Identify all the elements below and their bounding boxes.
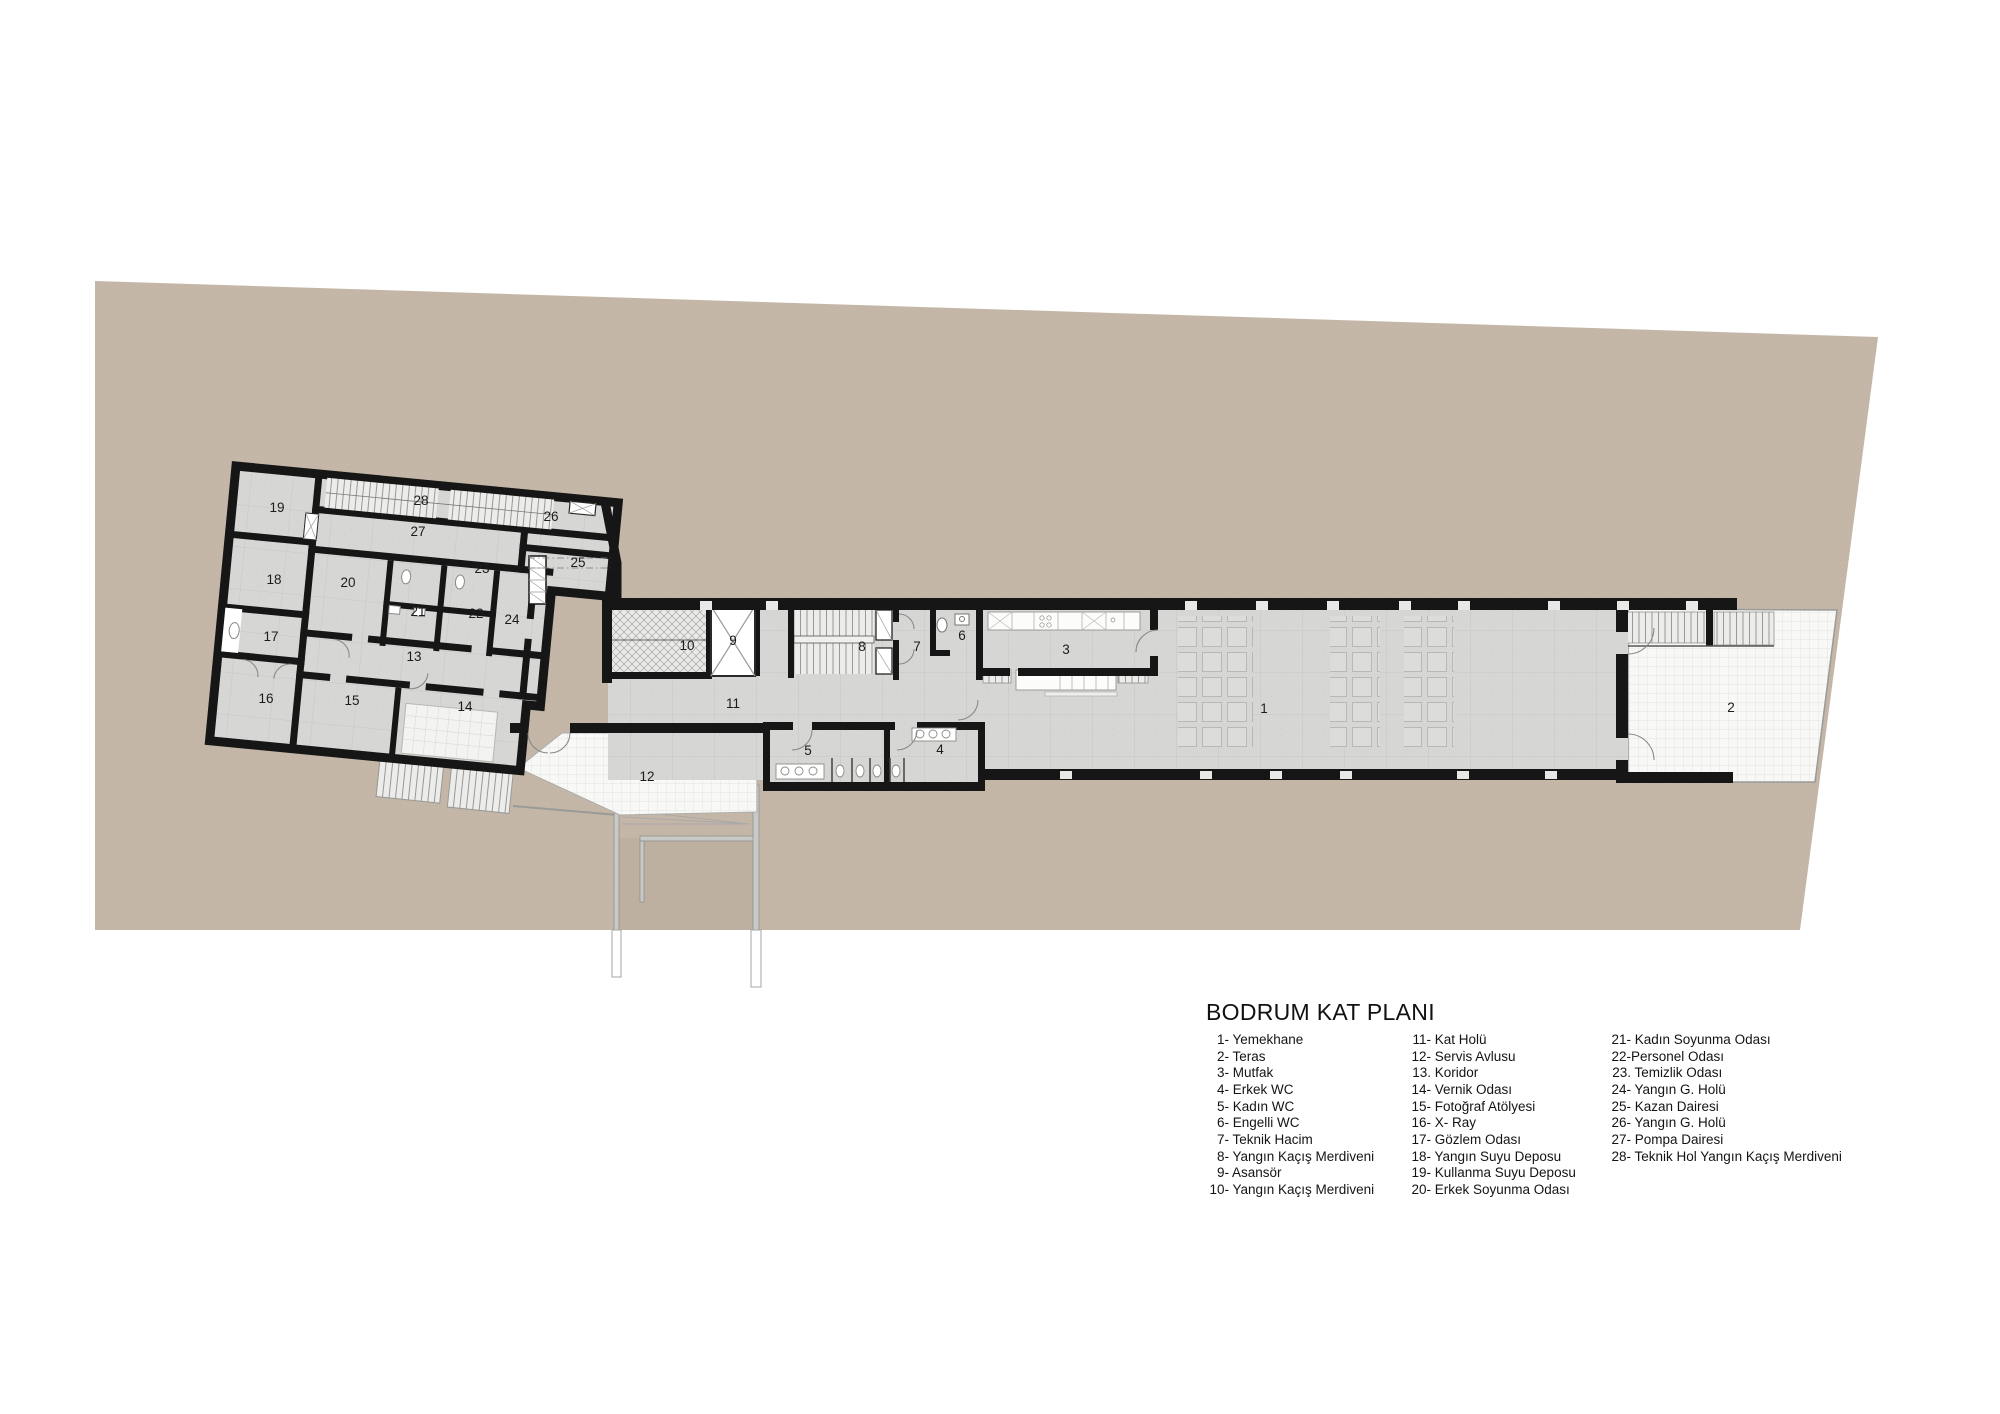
legend-item: 27- Pompa Dairesi [1608,1132,1842,1149]
legend-item: 9- Asansör [1206,1165,1374,1182]
legend-item: 12- Servis Avlusu [1408,1049,1576,1066]
room-label-16: 16 [258,691,273,706]
toilets-block [763,722,985,791]
room-label-4: 4 [936,742,944,757]
legend-column-1: 1- Yemekhane 2- Teras 3- Mutfak 4- Erkek… [1206,1032,1374,1199]
room-label-22: 22 [468,606,483,621]
dining-tables [1404,616,1454,748]
legend-item: 13. Koridor [1408,1065,1576,1082]
room-label-5: 5 [804,743,812,758]
legend-item: 28- Teknik Hol Yangın Kaçış Merdiveni [1608,1149,1842,1166]
legend-item: 24- Yangın G. Holü [1608,1082,1842,1099]
page: 1 2 3 4 5 6 7 8 9 10 11 12 13 14 15 16 1… [0,0,2000,1414]
room-label-28: 28 [413,493,428,508]
room-label-1: 1 [1260,701,1268,716]
room-label-12: 12 [639,769,654,784]
legend-item: 19- Kullanma Suyu Deposu [1408,1165,1576,1182]
legend-item: 18- Yangın Suyu Deposu [1408,1149,1576,1166]
legend-item: 11- Kat Holü [1408,1032,1576,1049]
terrace-stair [1623,612,1708,643]
room-label-17: 17 [263,629,278,644]
room-label-15: 15 [344,693,359,708]
room-label-26: 26 [543,509,558,524]
stair-10 [612,608,712,679]
legend-item: 16- X- Ray [1408,1115,1576,1132]
legend-column-3: 21- Kadın Soyunma Odası 22-Personel Odas… [1608,1032,1842,1165]
legend-item: 2- Teras [1206,1049,1374,1066]
terrace-stair [1714,612,1774,645]
legend-item: 8- Yangın Kaçış Merdiveni [1206,1149,1374,1166]
legend-item: 14- Vernik Odası [1408,1082,1576,1099]
legend-item: 7- Teknik Hacim [1206,1132,1374,1149]
room-label-13: 13 [406,649,421,664]
room-label-20: 20 [340,575,355,590]
room-label-23: 23 [474,561,489,576]
legend-item: 23. Temizlik Odası [1608,1065,1842,1082]
room-label-8: 8 [858,639,866,654]
room-label-3: 3 [1062,642,1070,657]
dining-tables [1178,616,1253,748]
legend-item: 10- Yangın Kaçış Merdiveni [1206,1182,1374,1199]
dining-tables [1330,616,1380,748]
legend-item: 17- Gözlem Odası [1408,1132,1576,1149]
legend-item: 26- Yangın G. Holü [1608,1115,1842,1132]
room-label-21: 21 [410,604,425,619]
room14-mat [401,703,497,762]
room-label-18: 18 [266,572,281,587]
legend-item: 22-Personel Odası [1608,1049,1842,1066]
legend-item: 20- Erkek Soyunma Odası [1408,1182,1576,1199]
room-label-14: 14 [457,699,473,714]
legend-column-2: 11- Kat Holü 12- Servis Avlusu 13. Korid… [1408,1032,1576,1199]
legend-item: 6- Engelli WC [1206,1115,1374,1132]
legend-item: 5- Kadın WC [1206,1099,1374,1116]
room-label-25: 25 [570,555,585,570]
room-label-19: 19 [269,500,284,515]
main-wing [510,598,1737,791]
room-label-7: 7 [913,639,921,654]
terrace [1623,609,1837,782]
legend-item: 25- Kazan Dairesi [1608,1099,1842,1116]
room-label-24: 24 [504,612,520,627]
room-label-27: 27 [410,524,425,539]
floor-plan-canvas: 1 2 3 4 5 6 7 8 9 10 11 12 13 14 15 16 1… [0,0,2000,1414]
room-label-2: 2 [1727,700,1735,715]
room-label-6: 6 [958,628,966,643]
room-label-9: 9 [729,633,737,648]
legend-item: 1- Yemekhane [1206,1032,1374,1049]
legend-item: 15- Fotoğraf Atölyesi [1408,1099,1576,1116]
legend-item: 4- Erkek WC [1206,1082,1374,1099]
legend-item: 3- Mutfak [1206,1065,1374,1082]
legend-item: 21- Kadın Soyunma Odası [1608,1032,1842,1049]
room-label-10: 10 [679,638,694,653]
plan-title: BODRUM KAT PLANI [1206,999,1435,1026]
room-label-11: 11 [726,696,740,711]
